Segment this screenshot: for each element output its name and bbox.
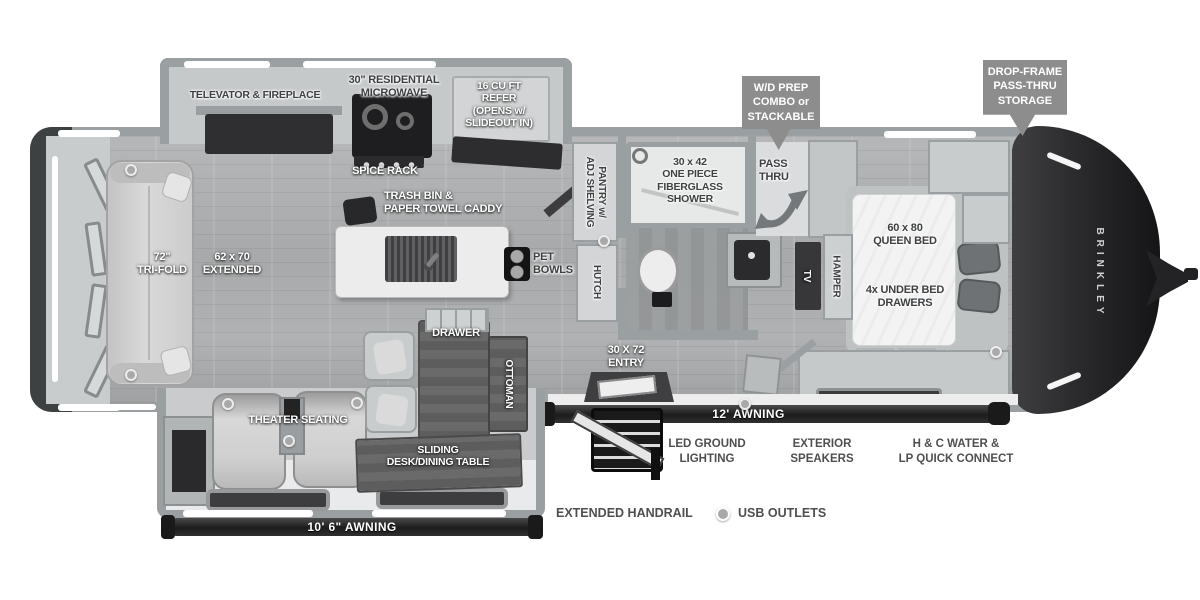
- brand-logo: BRINKLEY: [1093, 203, 1107, 343]
- trash-bin-icon: [342, 196, 377, 226]
- window-slat: [303, 61, 436, 68]
- spice-rack-label: SPICE RACK: [346, 165, 424, 178]
- overhead-cabinet: [928, 140, 1010, 194]
- vanity-sink: [734, 240, 770, 280]
- tri-fold-label: 72" TRI-FOLD: [128, 251, 196, 277]
- usb-outlets-legend: USB OUTLETS: [738, 505, 828, 521]
- window-slat: [372, 510, 506, 517]
- front-cap: [1012, 126, 1160, 414]
- toilet: [637, 247, 679, 295]
- wall: [618, 330, 758, 340]
- usb-outlet-icon: [283, 435, 295, 447]
- window-slat: [58, 130, 120, 137]
- cooktop: [352, 94, 432, 158]
- vanity-faucet-icon: [748, 252, 755, 259]
- usb-outlet-icon: [598, 235, 610, 247]
- pet-bowls-label: PET BOWLS: [533, 251, 579, 277]
- pantry-label: PANTRY w/ ADJ SHELVING: [575, 148, 615, 236]
- chair-seat: [372, 339, 407, 376]
- usb-outlet-icon: [125, 164, 137, 176]
- pass-thru-arrow-icon: [752, 184, 810, 230]
- rear-window-slat: [52, 156, 58, 382]
- trash-caddy-label: TRASH BIN & PAPER TOWEL CADDY: [384, 190, 510, 216]
- queen-bed: [852, 194, 956, 346]
- fireplace-screen: [172, 430, 206, 492]
- usb-outlet-icon: [351, 397, 363, 409]
- tv-label: TV: [799, 265, 813, 287]
- pass-thru-label: PASS THRU: [759, 158, 803, 184]
- cooktop-burner: [396, 112, 414, 130]
- wardrobe: [962, 194, 1010, 244]
- window-slat: [183, 510, 313, 517]
- televator-fireplace-unit: [205, 114, 333, 154]
- hitch-knob: [1184, 268, 1198, 280]
- cooktop-burner: [362, 104, 388, 130]
- refer-label: 16 CU FT REFER (OPENS w/ SLIDEOUT IN): [452, 80, 546, 130]
- hutch-label: HUTCH: [588, 253, 604, 311]
- wall: [618, 136, 626, 238]
- slide-extended-label: 62 x 70 EXTENDED: [194, 251, 270, 277]
- rear-awning-label: 10' 6" AWNING: [168, 520, 536, 534]
- toilet-tank: [652, 292, 672, 307]
- bed-pillow: [956, 278, 1001, 314]
- usb-outlet-icon: [125, 369, 137, 381]
- brand-text: BRINKLEY: [1095, 227, 1106, 318]
- awning-cap: [988, 402, 1010, 425]
- floorplan-stage: BRINKLEY 12' AWNING 10' 6" AWNING W/D PR…: [0, 0, 1200, 600]
- led-lighting-label: LED GROUND LIGHTING: [655, 437, 759, 467]
- ottoman-label: OTTOMAN: [500, 346, 516, 422]
- queen-bed-label: 60 x 80 QUEEN BED: [855, 222, 955, 248]
- awning-cap: [161, 515, 175, 539]
- entry-label: 30 X 72 ENTRY: [597, 344, 655, 370]
- desk-label: SLIDING DESK/DINING TABLE: [368, 444, 508, 469]
- televator-label: TELEVATOR & FIREPLACE: [172, 89, 338, 101]
- window-slat: [78, 404, 156, 410]
- window-slat: [884, 131, 976, 138]
- microwave-label: 30" RESIDENTIAL MICROWAVE: [338, 74, 450, 100]
- water-connect-label: H & C WATER & LP QUICK CONNECT: [894, 437, 1018, 467]
- theater-label: THEATER SEATING: [238, 414, 358, 427]
- drawer-label: DRAWER: [426, 327, 486, 340]
- under-bed-label: 4x UNDER BED DRAWERS: [855, 284, 955, 310]
- usb-outlet-icon: [990, 346, 1002, 358]
- extended-handrail-legend: EXTENDED HANDRAIL: [556, 505, 696, 521]
- shower-label: 30 x 42 ONE PIECE FIBERGLASS SHOWER: [640, 156, 740, 206]
- bed-pillow: [956, 240, 1001, 276]
- usb-outlet-icon: [739, 398, 751, 410]
- hamper-label: HAMPER: [829, 248, 844, 306]
- chair-seat: [375, 393, 409, 427]
- exterior-speakers-label: EXTERIOR SPEAKERS: [780, 437, 864, 467]
- pet-bowls-icon: [504, 247, 530, 281]
- rear-awning-bar: 10' 6" AWNING: [168, 518, 536, 536]
- awning-cap: [528, 515, 543, 539]
- callout-drop-frame: DROP-FRAME PASS-THRU STORAGE: [983, 60, 1067, 136]
- window-slat: [184, 61, 270, 68]
- floor-mat: [206, 489, 330, 511]
- bedroom-step: [742, 354, 782, 396]
- island-sink-mat: [385, 236, 457, 282]
- usb-legend-icon: [716, 507, 730, 521]
- usb-outlet-icon: [222, 398, 234, 410]
